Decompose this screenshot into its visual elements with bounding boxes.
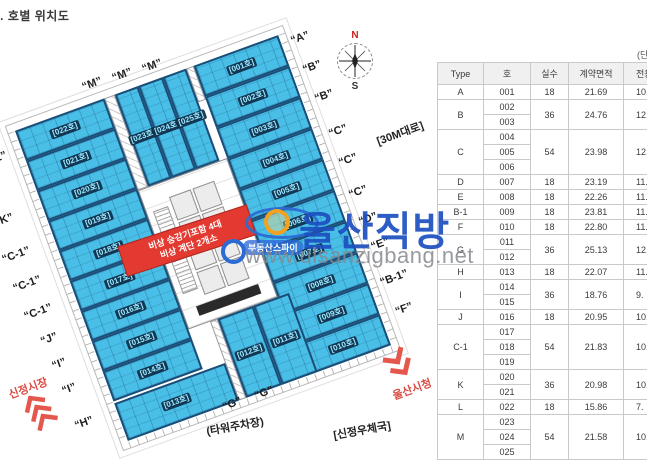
- table-cell-rooms: 18: [531, 175, 569, 190]
- unit-label: [003호]: [248, 118, 280, 138]
- table-cell-type: H: [438, 265, 484, 280]
- table-cell-exclusive: 11.: [624, 265, 647, 280]
- table-cell-type: B-1: [438, 205, 484, 220]
- table-cell-type: D: [438, 175, 484, 190]
- table-cell-unit: 001: [484, 85, 531, 100]
- unit-label: [022호]: [49, 120, 81, 140]
- type-label: “B-1”: [378, 267, 409, 288]
- compass-star-icon: [337, 43, 373, 79]
- unit-label: [005호]: [271, 180, 303, 200]
- table-cell-type: L: [438, 400, 484, 415]
- type-label: “F”: [394, 300, 415, 317]
- type-label: “B”: [301, 58, 323, 76]
- table-cell-type: B: [438, 100, 484, 130]
- table-row: G0113625.1312.: [438, 235, 647, 250]
- table-cell-type: E: [438, 190, 484, 205]
- unit-label: [014호]: [137, 360, 169, 380]
- table-cell-unit: 005: [484, 145, 531, 160]
- unit-label: [006호]: [282, 211, 314, 231]
- table-cell-rooms: 54: [531, 415, 569, 460]
- table-cell-exclusive: 11.: [624, 220, 647, 235]
- table-cell-unit: 006: [484, 160, 531, 175]
- header-type: Type: [438, 63, 484, 85]
- table-cell-unit: 012: [484, 250, 531, 265]
- type-label: “C-1”: [0, 244, 31, 265]
- type-label: “A”: [289, 29, 311, 47]
- table-cell-type: I: [438, 280, 484, 310]
- table-cell-exclusive: 10.: [624, 325, 647, 370]
- unit-label: [008호]: [305, 273, 337, 293]
- table-cell-contract: 20.98: [569, 370, 624, 400]
- table-cell-rooms: 36: [531, 100, 569, 130]
- table-cell-unit: 024: [484, 430, 531, 445]
- table-cell-type: A: [438, 85, 484, 100]
- table-cell-unit: 013: [484, 265, 531, 280]
- unit-label: [001호]: [226, 56, 258, 76]
- header-unit: 호: [484, 63, 531, 85]
- table-cell-rooms: 18: [531, 310, 569, 325]
- table-cell-contract: 15.86: [569, 400, 624, 415]
- unit-label: [019호]: [82, 210, 114, 230]
- table-cell-unit: 021: [484, 385, 531, 400]
- compass-south-label: S: [352, 81, 359, 92]
- table-cell-type: C: [438, 130, 484, 175]
- table-cell-unit: 015: [484, 295, 531, 310]
- table-cell-exclusive: 12.: [624, 130, 647, 175]
- table-header-row: Type 호 실수 계약면적 전용면적: [438, 63, 647, 85]
- table-cell-contract: 21.69: [569, 85, 624, 100]
- table-cell-contract: 23.81: [569, 205, 624, 220]
- table-row: I0143618.769.: [438, 280, 647, 295]
- table-cell-contract: 23.19: [569, 175, 624, 190]
- table-cell-contract: 20.95: [569, 310, 624, 325]
- unit-label: [025호]: [175, 109, 207, 129]
- type-label: “C”: [327, 122, 349, 140]
- table-cell-type: J: [438, 310, 484, 325]
- table-cell-rooms: 18: [531, 265, 569, 280]
- unit-label: [012호]: [234, 342, 266, 362]
- table-unit-note: (단위:㎡): [637, 48, 647, 61]
- page-title: 4. 호별 위치도: [0, 7, 69, 24]
- table-cell-rooms: 36: [531, 370, 569, 400]
- table-cell-contract: 25.13: [569, 235, 624, 265]
- table-cell-unit: 002: [484, 100, 531, 115]
- area-table: Type 호 실수 계약면적 전용면적 A0011821.6910.B00236…: [437, 62, 647, 460]
- table-cell-unit: 004: [484, 130, 531, 145]
- table-row: F0101822.8011.: [438, 220, 647, 235]
- table-cell-exclusive: 12.: [624, 235, 647, 265]
- table-cell-exclusive: 9.: [624, 280, 647, 310]
- unit-label: [004호]: [260, 149, 292, 169]
- type-label: “J”: [39, 330, 59, 347]
- type-label: “C”: [337, 151, 359, 169]
- table-cell-contract: 24.76: [569, 100, 624, 130]
- unit-label: [015호]: [126, 330, 158, 350]
- table-row: A0011821.6910.: [438, 85, 647, 100]
- table-row: J0161820.9510.: [438, 310, 647, 325]
- unit-label: [009호]: [316, 304, 348, 324]
- table-row: C0045423.9812.: [438, 130, 647, 145]
- table-cell-unit: 022: [484, 400, 531, 415]
- table-cell-unit: 003: [484, 115, 531, 130]
- table-cell-exclusive: 11.: [624, 205, 647, 220]
- type-label: “D”: [357, 210, 379, 228]
- table-cell-unit: 025: [484, 445, 531, 460]
- table-cell-contract: 23.98: [569, 130, 624, 175]
- type-label: “K”: [0, 211, 15, 229]
- compass-north-label: N: [351, 30, 358, 41]
- type-label: “C-1”: [22, 301, 53, 322]
- table-cell-rooms: 54: [531, 325, 569, 370]
- unit-label: [010호]: [327, 335, 359, 355]
- floor-plan: [022호][021호][020호][019호][018호][017호][016…: [15, 35, 391, 441]
- type-label: “C”: [347, 183, 369, 201]
- table-row: K0203620.9810.: [438, 370, 647, 385]
- unit-label: [007호]: [293, 242, 325, 262]
- table-cell-exclusive: 10.: [624, 85, 647, 100]
- header-exclusive-area: 전용면적: [624, 63, 647, 85]
- table-cell-rooms: 54: [531, 130, 569, 175]
- table-row: M0235421.5810.: [438, 415, 647, 430]
- table-cell-unit: 017: [484, 325, 531, 340]
- type-label: “I”: [60, 381, 77, 397]
- table-cell-exclusive: 11.: [624, 175, 647, 190]
- table-cell-unit: 008: [484, 190, 531, 205]
- table-cell-rooms: 18: [531, 400, 569, 415]
- unit-label: [002호]: [237, 87, 269, 107]
- compass: N S: [330, 30, 380, 92]
- table-cell-contract: 21.58: [569, 415, 624, 460]
- table-cell-rooms: 18: [531, 220, 569, 235]
- type-label: “B”: [313, 87, 335, 105]
- table-cell-type: M: [438, 415, 484, 460]
- table-row: D0071823.1911.: [438, 175, 647, 190]
- table-cell-unit: 018: [484, 340, 531, 355]
- unit-label: [011호]: [270, 329, 301, 349]
- table-cell-unit: 007: [484, 175, 531, 190]
- table-cell-exclusive: 12.: [624, 100, 647, 130]
- table-cell-contract: 22.07: [569, 265, 624, 280]
- landmark-road: [30M대로]: [374, 117, 425, 149]
- type-label: “I”: [50, 356, 67, 372]
- table-cell-rooms: 36: [531, 280, 569, 310]
- table-cell-rooms: 18: [531, 205, 569, 220]
- table-row: B0023624.7612.: [438, 100, 647, 115]
- table-cell-rooms: 18: [531, 190, 569, 205]
- table-row: L0221815.867.: [438, 400, 647, 415]
- table-cell-unit: 019: [484, 355, 531, 370]
- type-label: “C-1”: [11, 273, 42, 294]
- table-cell-exclusive: 7.: [624, 400, 647, 415]
- table-cell-type: F: [438, 220, 484, 235]
- table-row: C-10175421.8310.: [438, 325, 647, 340]
- table-cell-type: K: [438, 370, 484, 400]
- table-cell-exclusive: 10.: [624, 415, 647, 460]
- header-rooms: 실수: [531, 63, 569, 85]
- table-cell-exclusive: 11.: [624, 190, 647, 205]
- table-cell-exclusive: 10.: [624, 370, 647, 400]
- type-label: “E”: [369, 235, 390, 253]
- table-cell-contract: 21.83: [569, 325, 624, 370]
- table-cell-rooms: 36: [531, 235, 569, 265]
- table-row: E0081822.2611.: [438, 190, 647, 205]
- unit-label: [020호]: [71, 180, 103, 200]
- table-cell-unit: 011: [484, 235, 531, 250]
- unit-label: [013호]: [161, 392, 193, 412]
- type-label: “H”: [73, 414, 95, 432]
- table-cell-unit: 020: [484, 370, 531, 385]
- table-cell-contract: 22.80: [569, 220, 624, 235]
- table-cell-type: C-1: [438, 325, 484, 370]
- header-contract-area: 계약면적: [569, 63, 624, 85]
- unit-label: [016호]: [115, 300, 147, 320]
- table-cell-exclusive: 10.: [624, 310, 647, 325]
- landmark-post-office: [신정우체국]: [332, 417, 392, 443]
- table-row: B-10091823.8111.: [438, 205, 647, 220]
- table-cell-unit: 023: [484, 415, 531, 430]
- unit-label: [021호]: [60, 150, 92, 170]
- table-cell-unit: 016: [484, 310, 531, 325]
- table-cell-rooms: 18: [531, 85, 569, 100]
- table-cell-unit: 009: [484, 205, 531, 220]
- table-cell-type: G: [438, 235, 484, 265]
- table-row: H0131822.0711.: [438, 265, 647, 280]
- table-cell-unit: 010: [484, 220, 531, 235]
- table-cell-contract: 18.76: [569, 280, 624, 310]
- table-cell-unit: 014: [484, 280, 531, 295]
- table-cell-contract: 22.26: [569, 190, 624, 205]
